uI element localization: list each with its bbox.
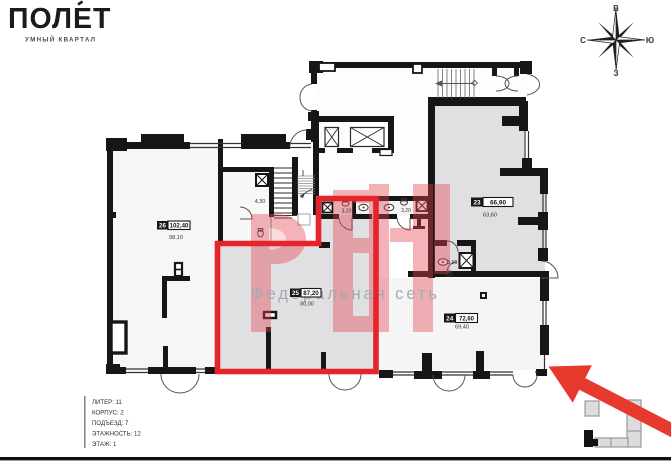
svg-text:ЭТАЖ: 1: ЭТАЖ: 1 [92, 441, 117, 448]
svg-text:80,00: 80,00 [300, 302, 314, 308]
svg-text:66,90: 66,90 [490, 200, 506, 207]
svg-text:69,40: 69,40 [455, 325, 469, 331]
svg-text:102,40: 102,40 [170, 223, 189, 230]
svg-text:3,20: 3,20 [401, 208, 411, 214]
svg-text:З: З [613, 69, 618, 78]
svg-text:Федеральная сеть: Федеральная сеть [251, 284, 440, 303]
svg-text:КОРПУС: 2: КОРПУС: 2 [92, 410, 124, 417]
svg-text:63,60: 63,60 [483, 213, 497, 219]
svg-text:98,10: 98,10 [169, 235, 183, 241]
svg-text:ЛИТЕР: 11: ЛИТЕР: 11 [92, 399, 122, 406]
svg-text:26: 26 [159, 223, 166, 230]
svg-text:В: В [613, 4, 619, 13]
svg-text:72,60: 72,60 [459, 317, 475, 323]
svg-text:87,20: 87,20 [303, 290, 319, 297]
svg-text:23: 23 [473, 200, 481, 207]
svg-text:24: 24 [446, 316, 454, 323]
svg-text:ЭТАЖНОСТЬ: 12: ЭТАЖНОСТЬ: 12 [92, 431, 141, 438]
svg-text:3,20: 3,20 [342, 209, 352, 215]
svg-text:ПОДЪЕЗД: 7: ПОДЪЕЗД: 7 [92, 420, 129, 427]
svg-text:С: С [580, 36, 586, 45]
svg-text:25: 25 [292, 290, 299, 297]
svg-text:ПОЛЕТ: ПОЛЕТ [8, 3, 111, 35]
svg-text:Ю: Ю [646, 36, 654, 45]
svg-text:3,90: 3,90 [448, 260, 458, 266]
svg-text:УМНЫЙ КВАРТАЛ: УМНЫЙ КВАРТАЛ [25, 36, 96, 44]
svg-text:4,30: 4,30 [255, 199, 266, 205]
